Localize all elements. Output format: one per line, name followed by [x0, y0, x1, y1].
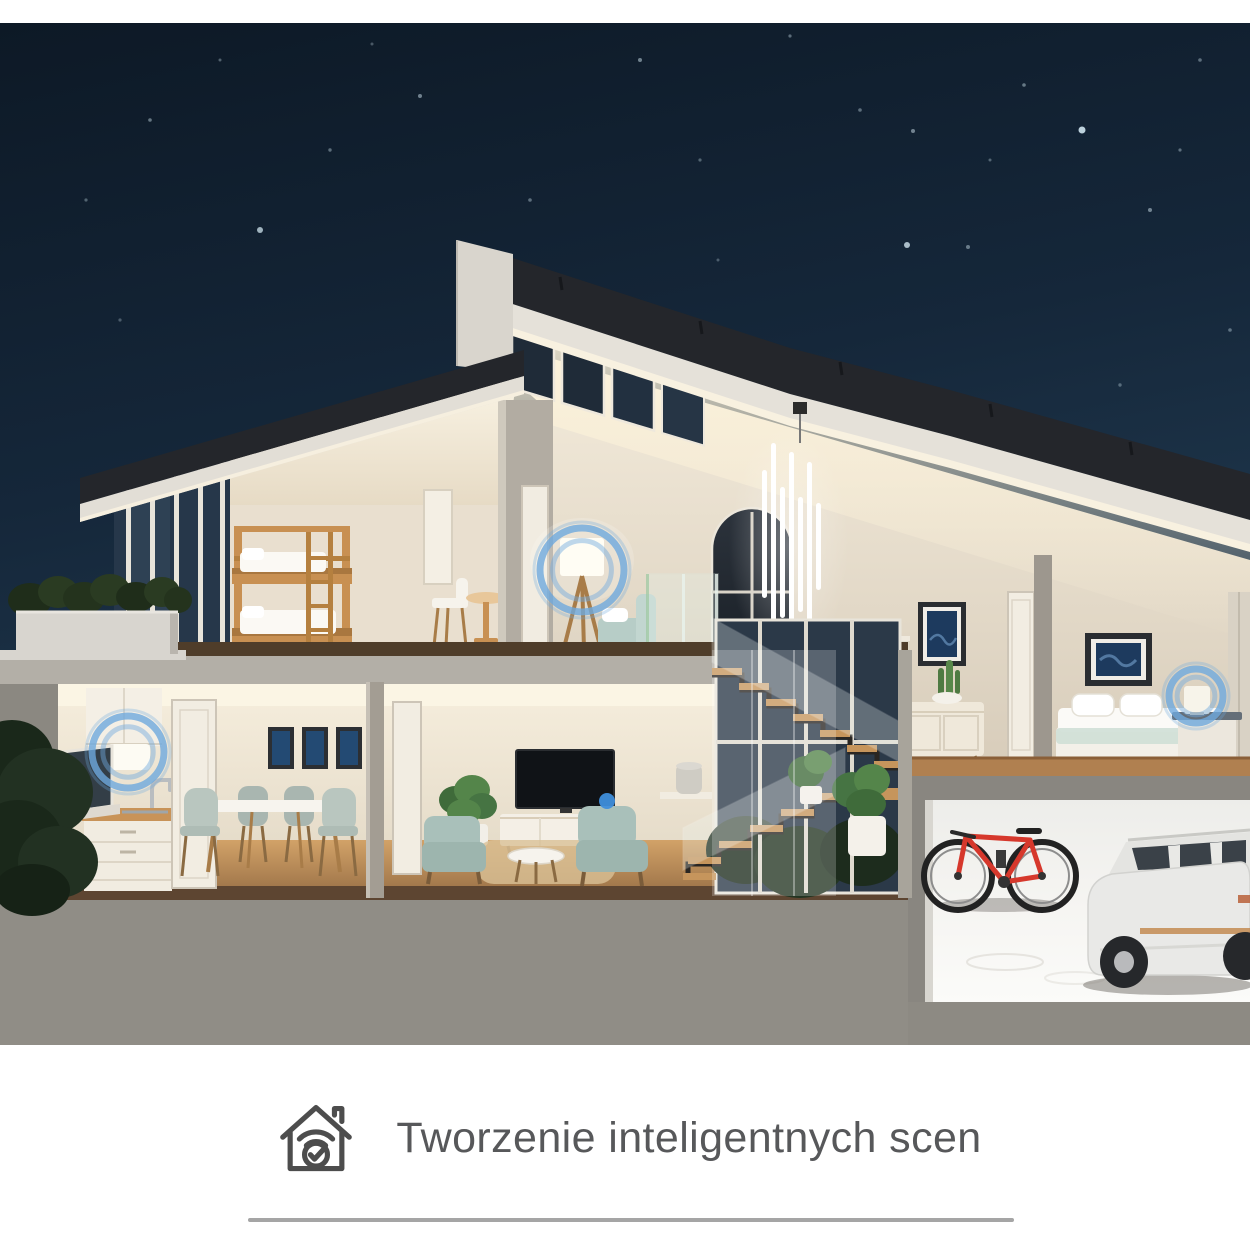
tv [516, 750, 614, 813]
hallway-door [1008, 592, 1034, 758]
ground-left [0, 900, 908, 1045]
landing-glass-railing [646, 574, 718, 652]
stairwell-right-wall [898, 650, 912, 898]
feature-caption: Tworzenie inteligentnych scen [0, 1091, 1250, 1187]
ground-right [905, 1002, 1250, 1045]
kids-room-door [424, 490, 452, 584]
caption-label: Tworzenie inteligentnych scen [396, 1115, 981, 1162]
roof-peak-cap [457, 240, 513, 372]
caption-section: Tworzenie inteligentnych scen [0, 1045, 1250, 1250]
living-room-door [393, 702, 421, 874]
top-white-band [0, 0, 1250, 23]
roof-terrace-planter [8, 574, 192, 654]
smart-spot-living-room-device [599, 793, 615, 809]
kids-landing-wall [498, 400, 553, 650]
product-image [0, 0, 1250, 1045]
bottom-divider [248, 1218, 1014, 1222]
frosted-stair-screen [712, 650, 836, 896]
bedroom-picture-frame [1085, 633, 1152, 686]
kitchen-smart-lamp [108, 744, 150, 770]
smart-home-illustration [0, 0, 1250, 1045]
smart-home-wifi-check-icon [268, 1091, 364, 1187]
dining-picture-frames [268, 727, 362, 769]
garage [905, 776, 1250, 1012]
hallway-picture-frame [918, 602, 966, 666]
hallway-bedroom-wall [1034, 555, 1052, 765]
